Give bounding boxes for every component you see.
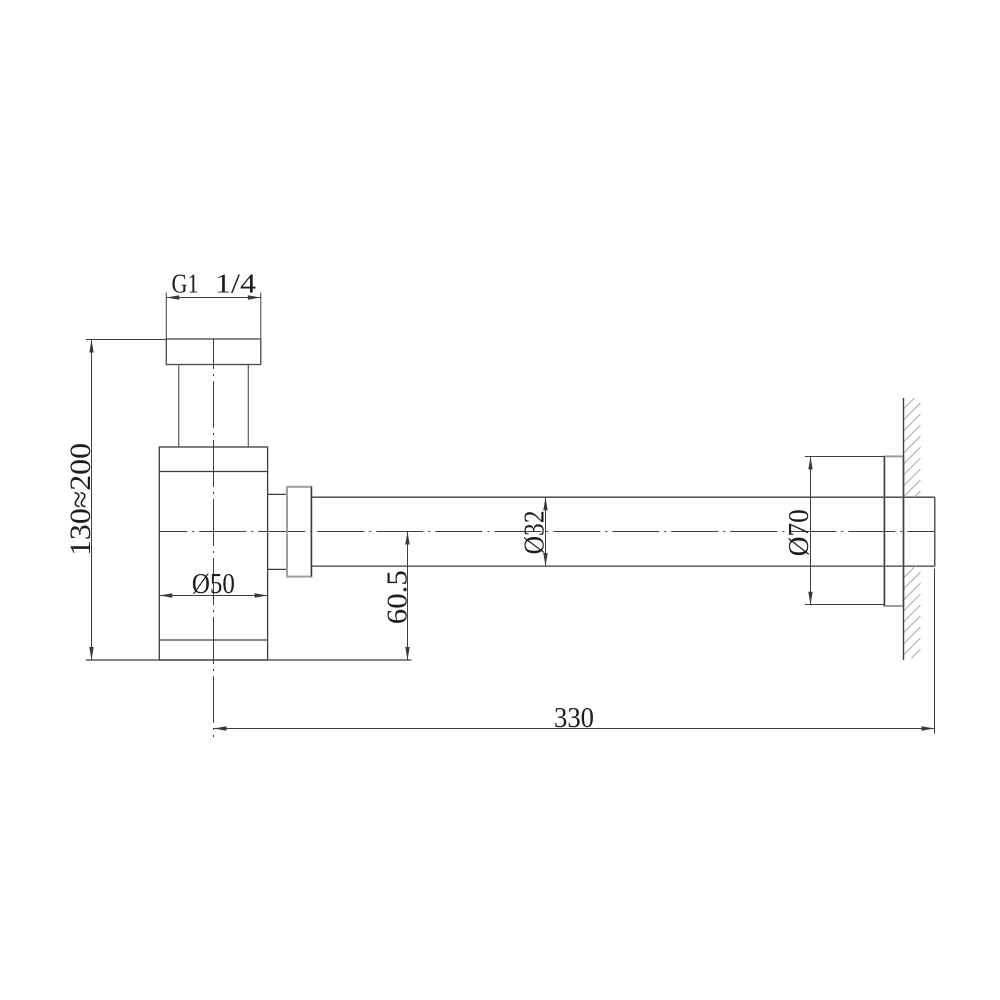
- svg-text:G1: G1: [172, 269, 199, 299]
- svg-text:130≈200: 130≈200: [64, 443, 97, 556]
- svg-text:Ø50: Ø50: [192, 568, 235, 600]
- svg-text:330: 330: [554, 702, 594, 734]
- svg-text:Ø32: Ø32: [518, 510, 550, 554]
- svg-text:Ø70: Ø70: [783, 509, 815, 556]
- svg-text:1/4: 1/4: [215, 269, 257, 299]
- svg-text:60.5: 60.5: [381, 570, 413, 624]
